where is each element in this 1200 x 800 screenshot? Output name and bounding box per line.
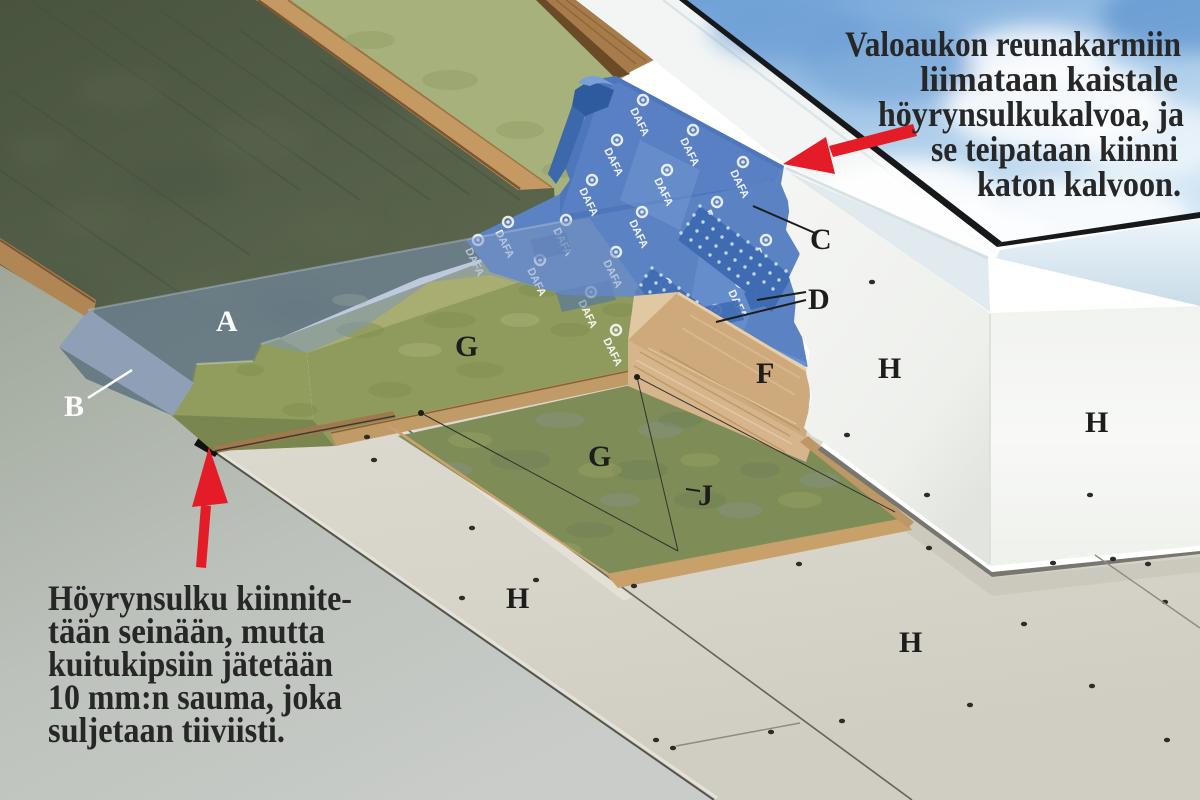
svg-text:H: H — [878, 352, 901, 385]
svg-text:liimataan kaistale: liimataan kaistale — [920, 59, 1178, 99]
svg-text:B: B — [64, 390, 84, 423]
svg-text:H: H — [1085, 406, 1108, 439]
svg-text:H: H — [506, 582, 529, 615]
svg-text:F: F — [756, 357, 774, 390]
svg-text:G: G — [455, 330, 478, 363]
svg-text:A: A — [216, 305, 238, 338]
svg-text:höyrynsulkukalvoa, ja: höyrynsulkukalvoa, ja — [878, 94, 1184, 134]
svg-text:se teipataan kiinni: se teipataan kiinni — [931, 129, 1178, 169]
svg-text:H: H — [899, 626, 922, 659]
svg-text:katon kalvoon.: katon kalvoon. — [977, 164, 1181, 204]
svg-text:C: C — [810, 223, 832, 256]
svg-text:suljetaan tiiviisti.: suljetaan tiiviisti. — [48, 710, 285, 750]
svg-text:J: J — [698, 479, 713, 512]
svg-text:G: G — [588, 440, 611, 473]
svg-text:Valoaukon reunakarmiin: Valoaukon reunakarmiin — [845, 24, 1181, 64]
svg-text:D: D — [808, 283, 830, 316]
